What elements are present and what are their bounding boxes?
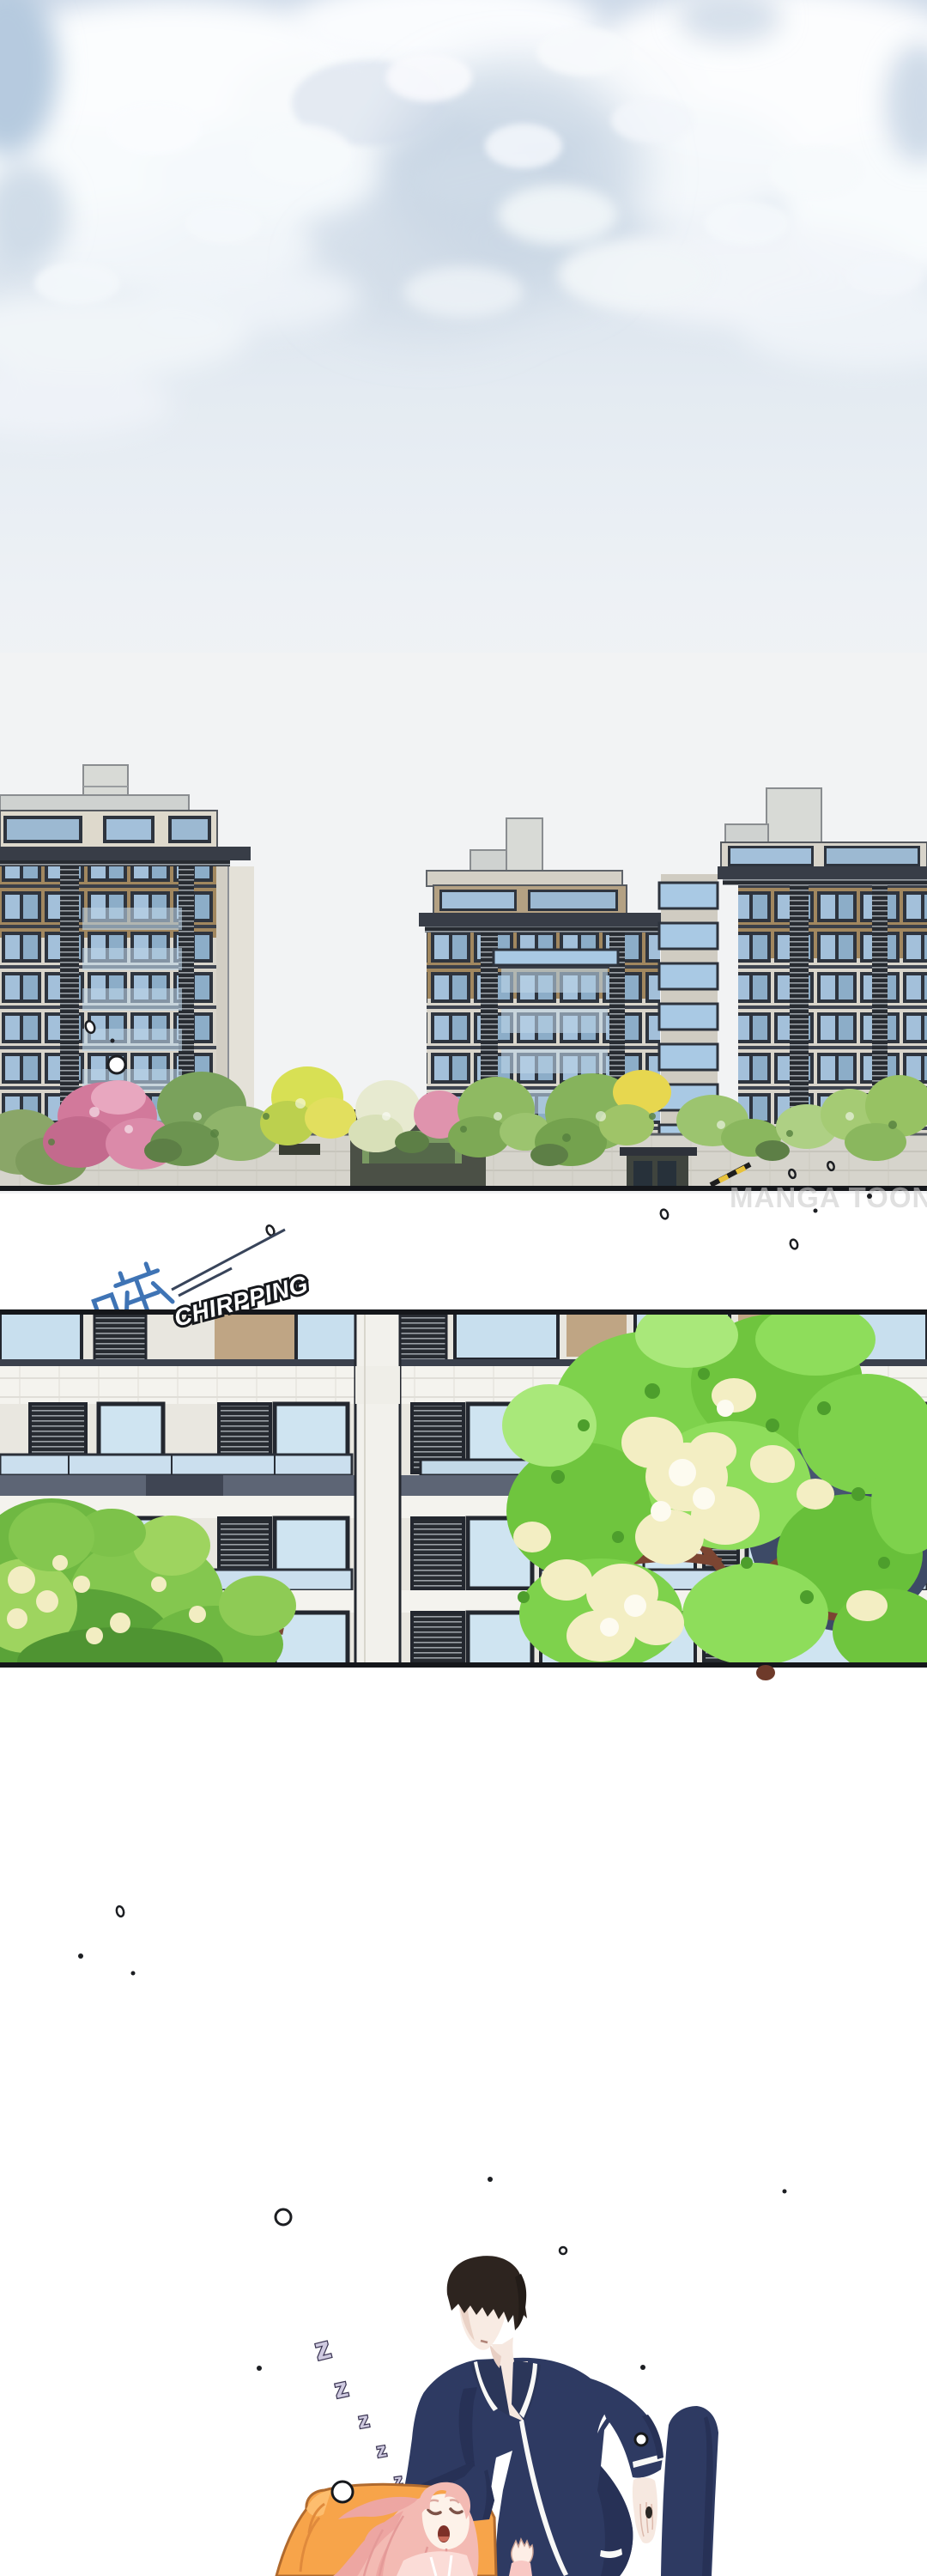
svg-text:z: z bbox=[374, 2438, 388, 2462]
svg-text:z: z bbox=[311, 2330, 334, 2367]
svg-text:MANGA TOON: MANGA TOON bbox=[730, 1182, 927, 1213]
svg-text:z: z bbox=[331, 2372, 350, 2403]
svg-text:z: z bbox=[356, 2408, 371, 2433]
